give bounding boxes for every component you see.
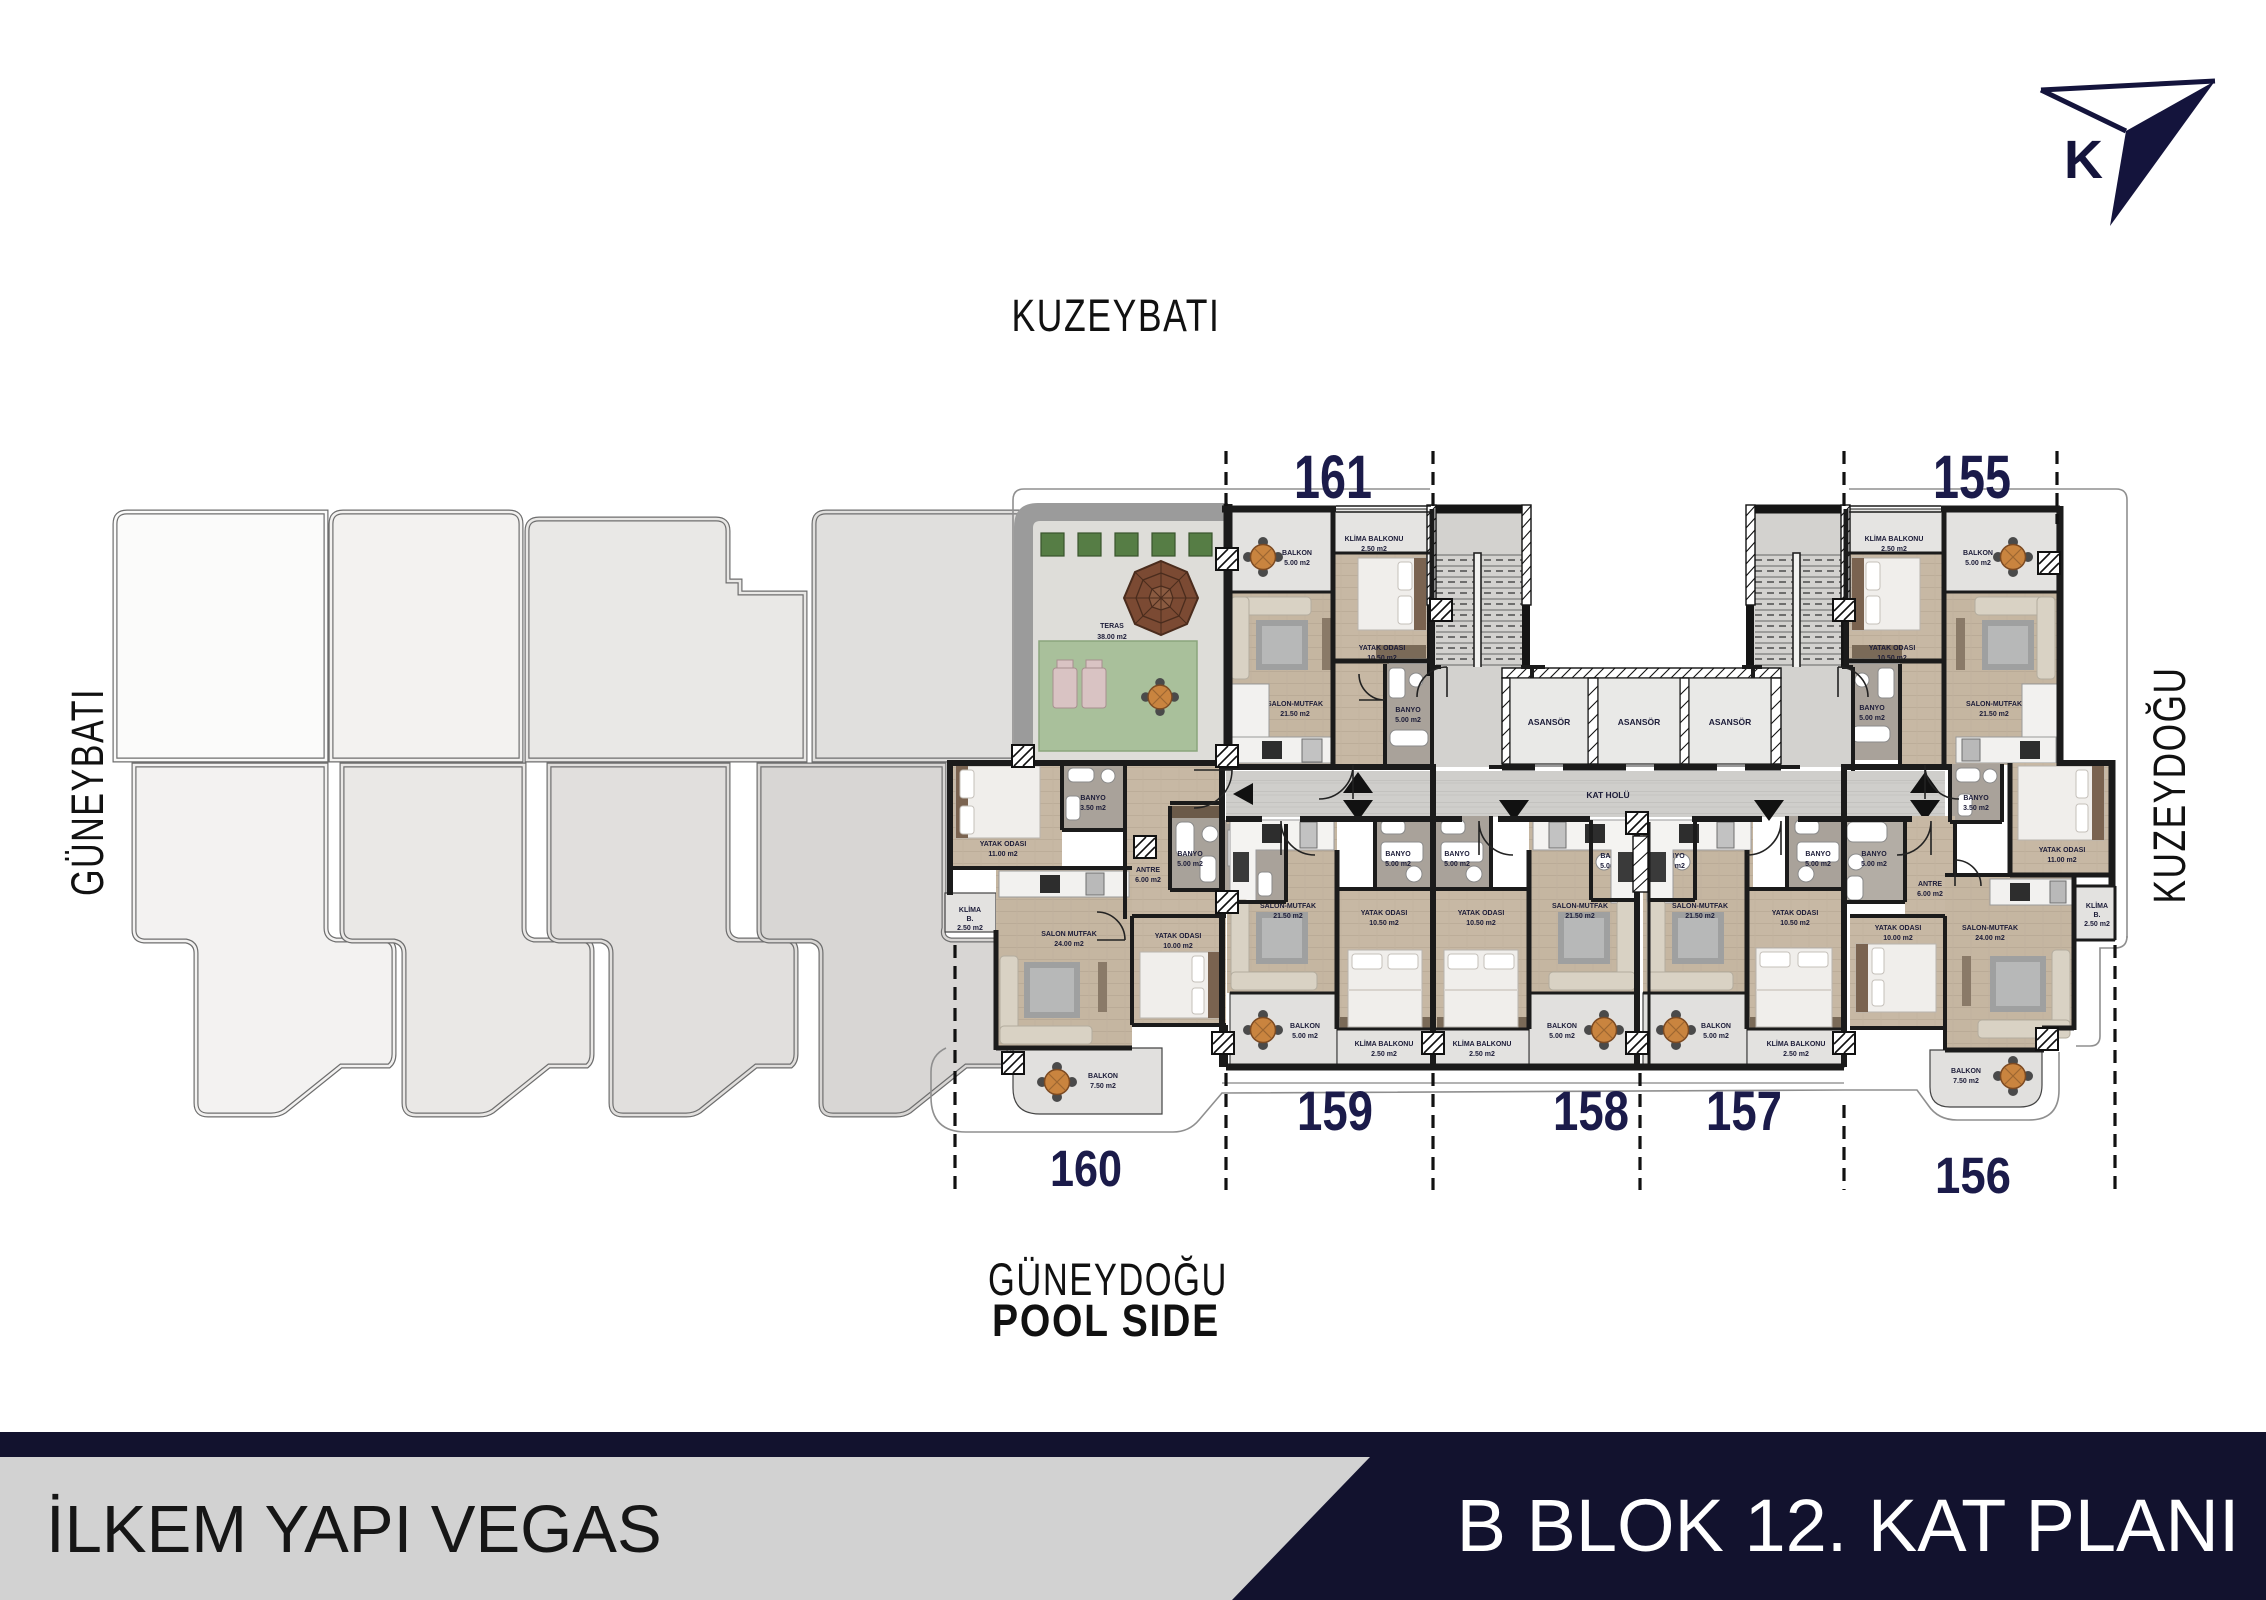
svg-text:BANYO: BANYO <box>1177 851 1203 858</box>
svg-text:KLİMA BALKONU: KLİMA BALKONU <box>1355 1040 1414 1048</box>
svg-text:YATAK ODASI: YATAK ODASI <box>1875 925 1922 932</box>
svg-text:160: 160 <box>1050 1140 1122 1197</box>
svg-text:158: 158 <box>1553 1079 1629 1142</box>
svg-text:ASANSÖR: ASANSÖR <box>1618 717 1661 727</box>
svg-text:5.00 m2: 5.00 m2 <box>1292 1033 1318 1040</box>
svg-text:KLİMA: KLİMA <box>2086 902 2108 910</box>
svg-text:2.50 m2: 2.50 m2 <box>1371 1051 1397 1058</box>
svg-text:3.50 m2: 3.50 m2 <box>1963 805 1989 812</box>
svg-text:5.00 m2: 5.00 m2 <box>1805 861 1831 868</box>
svg-text:POOL SIDE: POOL SIDE <box>992 1295 1220 1346</box>
svg-text:K: K <box>2064 130 2103 190</box>
svg-text:5.00 m2: 5.00 m2 <box>1284 560 1310 567</box>
svg-text:159: 159 <box>1297 1079 1373 1142</box>
svg-text:KLİMA: KLİMA <box>959 906 981 914</box>
svg-text:BANYO: BANYO <box>1861 851 1887 858</box>
svg-text:İLKEM YAPI VEGAS: İLKEM YAPI VEGAS <box>46 1492 662 1567</box>
svg-text:YATAK ODASI: YATAK ODASI <box>1458 910 1505 917</box>
svg-text:5.00 m2: 5.00 m2 <box>1385 861 1411 868</box>
svg-text:B.: B. <box>2094 912 2101 919</box>
svg-text:KAT HOLÜ: KAT HOLÜ <box>1586 790 1629 800</box>
svg-text:BALKON: BALKON <box>1547 1023 1577 1030</box>
svg-text:2.50 m2: 2.50 m2 <box>2084 921 2110 928</box>
svg-text:2.50 m2: 2.50 m2 <box>1469 1051 1495 1058</box>
svg-text:6.00 m2: 6.00 m2 <box>1917 891 1943 898</box>
svg-text:21.50 m2: 21.50 m2 <box>1273 913 1303 920</box>
svg-text:BALKON: BALKON <box>1290 1023 1320 1030</box>
svg-text:5.00 m2: 5.00 m2 <box>1861 861 1887 868</box>
svg-text:YATAK ODASI: YATAK ODASI <box>980 841 1027 848</box>
svg-text:BANYO: BANYO <box>1963 795 1989 802</box>
svg-text:155: 155 <box>1933 443 2011 511</box>
svg-text:TERAS: TERAS <box>1100 623 1124 630</box>
svg-text:BANYO: BANYO <box>1080 795 1106 802</box>
svg-text:BANYO: BANYO <box>1385 851 1411 858</box>
svg-text:5.00 m2: 5.00 m2 <box>1444 861 1470 868</box>
svg-text:ANTRE: ANTRE <box>1136 867 1160 874</box>
svg-text:KLİMA BALKONU: KLİMA BALKONU <box>1865 535 1924 543</box>
svg-text:KLİMA BALKONU: KLİMA BALKONU <box>1767 1040 1826 1048</box>
svg-text:KUZEYDOĞU: KUZEYDOĞU <box>2144 667 2195 904</box>
svg-text:6.00 m2: 6.00 m2 <box>1135 877 1161 884</box>
svg-text:KLİMA BALKONU: KLİMA BALKONU <box>1453 1040 1512 1048</box>
svg-text:YATAK ODASI: YATAK ODASI <box>1361 910 1408 917</box>
svg-text:7.50 m2: 7.50 m2 <box>1953 1078 1979 1085</box>
svg-text:YATAK ODASI: YATAK ODASI <box>2039 847 2086 854</box>
svg-text:156: 156 <box>1935 1147 2011 1204</box>
svg-text:ANTRE: ANTRE <box>1918 881 1942 888</box>
svg-text:10.00 m2: 10.00 m2 <box>1163 943 1193 950</box>
svg-text:YATAK ODASI: YATAK ODASI <box>1772 910 1819 917</box>
svg-text:ASANSÖR: ASANSÖR <box>1709 717 1752 727</box>
svg-text:10.50 m2: 10.50 m2 <box>1466 920 1496 927</box>
svg-text:2.50 m2: 2.50 m2 <box>1783 1051 1809 1058</box>
svg-text:24.00 m2: 24.00 m2 <box>1975 935 2005 942</box>
svg-text:B.: B. <box>967 916 974 923</box>
svg-text:BALKON: BALKON <box>1701 1023 1731 1030</box>
svg-text:ASANSÖR: ASANSÖR <box>1528 717 1571 727</box>
svg-text:24.00 m2: 24.00 m2 <box>1054 941 1084 948</box>
svg-text:5.00 m2: 5.00 m2 <box>1395 717 1421 724</box>
svg-text:157: 157 <box>1706 1079 1782 1142</box>
svg-text:BANYO: BANYO <box>1805 851 1831 858</box>
svg-text:3.50 m2: 3.50 m2 <box>1080 805 1106 812</box>
svg-text:5.00 m2: 5.00 m2 <box>1703 1033 1729 1040</box>
svg-text:161: 161 <box>1294 443 1372 511</box>
svg-text:7.50 m2: 7.50 m2 <box>1090 1083 1116 1090</box>
svg-text:38.00 m2: 38.00 m2 <box>1097 634 1127 641</box>
svg-text:BANYO: BANYO <box>1444 851 1470 858</box>
svg-text:5.00 m2: 5.00 m2 <box>1965 560 1991 567</box>
svg-text:SALON-MUTFAK: SALON-MUTFAK <box>1552 903 1608 910</box>
svg-text:BALKON: BALKON <box>1951 1068 1981 1075</box>
svg-text:10.50 m2: 10.50 m2 <box>1780 920 1810 927</box>
svg-text:21.50 m2: 21.50 m2 <box>1565 913 1595 920</box>
svg-text:5.00 m2: 5.00 m2 <box>1549 1033 1575 1040</box>
svg-text:10.50 m2: 10.50 m2 <box>1369 920 1399 927</box>
svg-text:11.00 m2: 11.00 m2 <box>988 851 1017 858</box>
svg-text:SALON-MUTFAK: SALON-MUTFAK <box>1267 701 1323 708</box>
svg-text:SALON MUTFAK: SALON MUTFAK <box>1041 931 1097 938</box>
svg-text:SALON-MUTFAK: SALON-MUTFAK <box>1260 903 1316 910</box>
svg-text:YATAK ODASI: YATAK ODASI <box>1359 645 1406 652</box>
svg-text:YATAK ODASI: YATAK ODASI <box>1155 933 1202 940</box>
svg-text:21.50 m2: 21.50 m2 <box>1979 711 2009 718</box>
svg-text:GÜNEYBATI: GÜNEYBATI <box>62 688 113 896</box>
svg-text:SALON-MUTFAK: SALON-MUTFAK <box>1966 701 2022 708</box>
svg-text:BANYO: BANYO <box>1859 705 1885 712</box>
svg-text:YATAK ODASI: YATAK ODASI <box>1869 645 1916 652</box>
svg-text:BALKON: BALKON <box>1282 550 1312 557</box>
svg-text:21.50 m2: 21.50 m2 <box>1280 711 1310 718</box>
svg-text:B BLOK 12. KAT PLANI: B BLOK 12. KAT PLANI <box>1457 1484 2240 1567</box>
svg-text:KUZEYBATI: KUZEYBATI <box>1012 290 1221 341</box>
svg-text:BALKON: BALKON <box>1963 550 1993 557</box>
svg-text:2.50 m2: 2.50 m2 <box>957 925 983 932</box>
svg-text:11.00 m2: 11.00 m2 <box>2047 857 2076 864</box>
svg-text:10.00 m2: 10.00 m2 <box>1883 935 1913 942</box>
svg-text:SALON-MUTFAK: SALON-MUTFAK <box>1962 925 2018 932</box>
svg-text:5.00 m2: 5.00 m2 <box>1859 715 1885 722</box>
svg-text:BALKON: BALKON <box>1088 1073 1118 1080</box>
svg-text:BANYO: BANYO <box>1395 707 1421 714</box>
svg-text:5.00 m2: 5.00 m2 <box>1177 861 1203 868</box>
svg-text:21.50 m2: 21.50 m2 <box>1685 913 1715 920</box>
svg-text:SALON-MUTFAK: SALON-MUTFAK <box>1672 903 1728 910</box>
svg-text:KLİMA BALKONU: KLİMA BALKONU <box>1345 535 1404 543</box>
